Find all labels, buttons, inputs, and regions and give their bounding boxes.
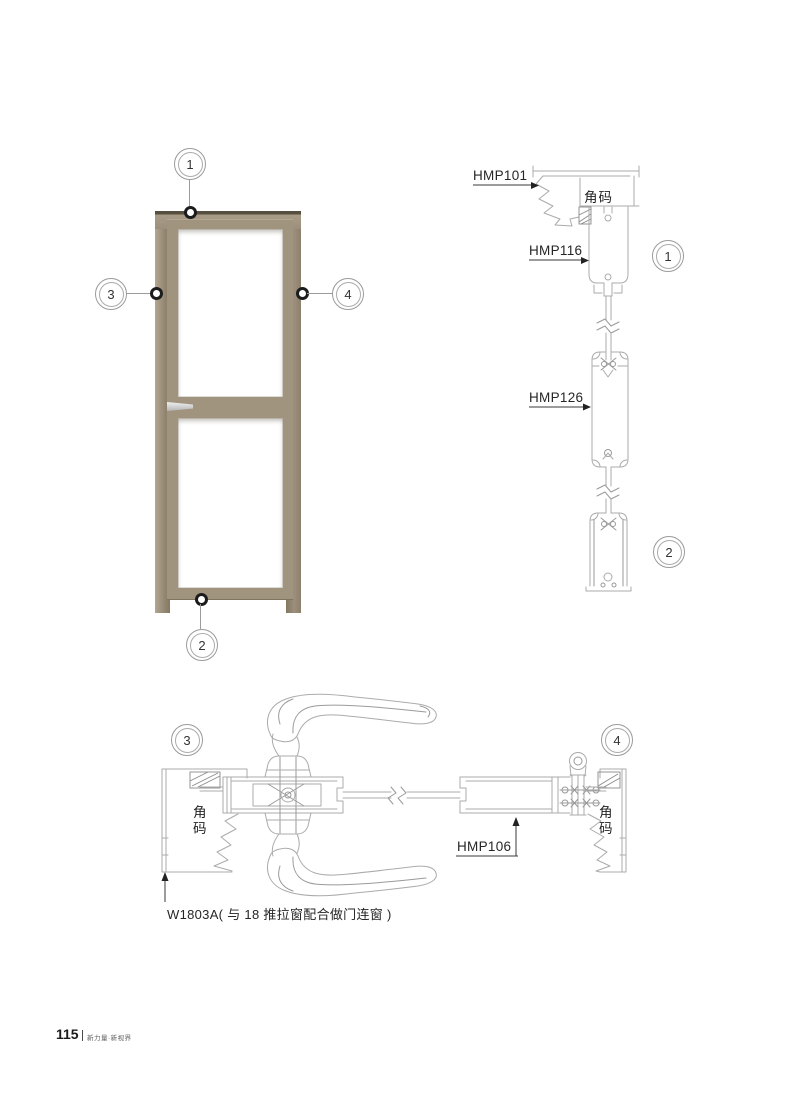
section-marker-dot-1	[184, 206, 197, 219]
label-hmp106: HMP106	[457, 839, 511, 854]
footer-brand-text: 新力量·新视界	[87, 1032, 132, 1042]
label-corner-code-left: 角码	[193, 805, 208, 836]
door-glass-upper	[178, 229, 283, 397]
glass-section-lines	[597, 296, 619, 513]
callout-number-section-4: 4	[613, 733, 620, 748]
callout-circle-2: 2	[186, 629, 218, 661]
callout-number-3: 3	[107, 287, 114, 302]
callout-ring-1: 1	[178, 152, 203, 177]
callout-circle-section-3: 3	[171, 724, 203, 756]
callout-ring-4: 4	[336, 282, 361, 307]
label-corner-code-head: 角码	[584, 186, 613, 206]
callout-circle-1: 1	[174, 148, 206, 180]
callout-ring-2: 2	[190, 633, 215, 658]
callout-ring-section-1: 1	[656, 244, 681, 269]
callout-number-2: 2	[198, 638, 205, 653]
leader-line-1	[189, 178, 190, 206]
callout-circle-section-4: 4	[601, 724, 633, 756]
callout-number-4: 4	[344, 287, 351, 302]
callout-circle-4: 4	[332, 278, 364, 310]
catalog-page: 1 3 4 2	[0, 0, 800, 1093]
door-glass-lower	[178, 418, 283, 588]
callout-ring-3: 3	[99, 282, 124, 307]
callout-ring-section-2: 2	[657, 540, 682, 565]
horizontal-section-drawing	[140, 680, 660, 940]
callout-number-section-3: 3	[183, 733, 190, 748]
label-corner-code-right: 角码	[599, 805, 614, 836]
leader-line-3	[125, 293, 150, 294]
callout-number-section-1: 1	[664, 249, 671, 264]
label-leader-lines-vertical	[473, 182, 591, 411]
footer-divider	[82, 1030, 83, 1041]
callout-number-1: 1	[186, 157, 193, 172]
door-top-rail-profile-hmp116	[589, 207, 628, 296]
door-lock-stile-profile	[223, 757, 343, 833]
section-marker-dot-3	[150, 287, 163, 300]
page-number: 115	[56, 1026, 79, 1042]
label-hmp116: HMP116	[529, 243, 582, 258]
callout-ring-section-4: 4	[605, 728, 630, 753]
door-hinge-stile-profile-hmp106	[460, 753, 600, 816]
label-hmp101: HMP101	[473, 168, 527, 183]
callout-ring-section-3: 3	[175, 728, 200, 753]
leader-line-4	[307, 293, 332, 294]
label-leader-lines-horizontal	[162, 817, 520, 902]
glass-plan-lines	[343, 787, 460, 804]
callout-circle-3: 3	[95, 278, 127, 310]
label-hmp126: HMP126	[529, 390, 583, 405]
label-w1803a: W1803A( 与 18 推拉窗配合做门连窗 )	[167, 904, 392, 923]
bottom-rail-profile	[586, 513, 631, 591]
callout-circle-section-1: 1	[652, 240, 684, 272]
callout-circle-section-2: 2	[653, 536, 685, 568]
leader-line-2	[200, 604, 201, 629]
callout-number-section-2: 2	[665, 545, 672, 560]
section-marker-dot-2	[195, 593, 208, 606]
mullion-profile-hmp126	[592, 352, 628, 467]
